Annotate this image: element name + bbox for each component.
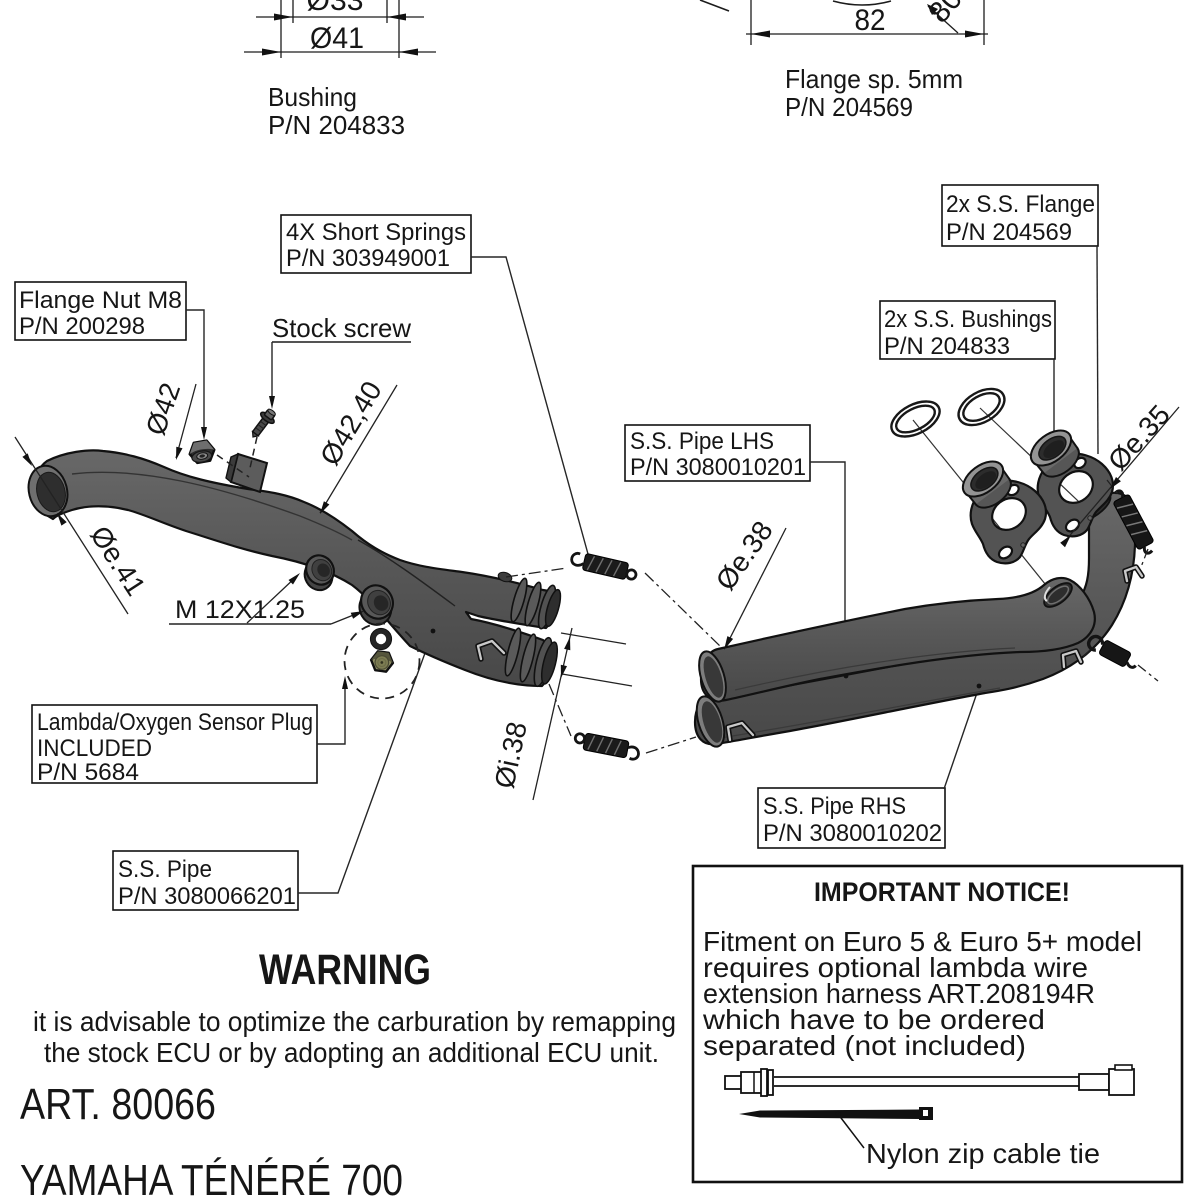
svg-text:IMPORTANT NOTICE!: IMPORTANT NOTICE! bbox=[814, 877, 1070, 907]
svg-text:P/N 5684: P/N 5684 bbox=[37, 759, 139, 786]
svg-text:4X Short Springs: 4X Short Springs bbox=[286, 219, 466, 246]
svg-text:the stock ECU or by adopting a: the stock ECU or by adopting an addition… bbox=[44, 1037, 659, 1068]
svg-text:Nylon zip cable tie: Nylon zip cable tie bbox=[866, 1138, 1100, 1169]
svg-text:P/N 3080010201: P/N 3080010201 bbox=[630, 454, 806, 481]
svg-text:Ø33: Ø33 bbox=[307, 0, 364, 17]
svg-text:Bushing: Bushing bbox=[268, 82, 357, 112]
svg-text:P/N 204569: P/N 204569 bbox=[946, 219, 1072, 246]
svg-text:Flange Nut M8: Flange Nut M8 bbox=[19, 287, 182, 314]
svg-text:2x S.S. Flange: 2x S.S. Flange bbox=[946, 191, 1095, 218]
svg-text:Ø41: Ø41 bbox=[310, 22, 364, 55]
svg-text:ART. 80066: ART. 80066 bbox=[20, 1080, 216, 1129]
svg-text:82: 82 bbox=[855, 4, 886, 37]
svg-text:P/N 303949001: P/N 303949001 bbox=[286, 245, 450, 272]
svg-text:Flange sp. 5mm: Flange sp. 5mm bbox=[785, 64, 963, 94]
svg-text:P/N 200298: P/N 200298 bbox=[19, 313, 145, 340]
svg-text:S.S. Pipe: S.S. Pipe bbox=[118, 856, 212, 883]
svg-text:it is advisable to optimize th: it is advisable to optimize the carburat… bbox=[33, 1006, 676, 1037]
svg-text:YAMAHA TÉNÉRÉ 700: YAMAHA TÉNÉRÉ 700 bbox=[20, 1156, 403, 1200]
svg-text:separated (not included): separated (not included) bbox=[703, 1030, 1026, 1061]
svg-text:WARNING: WARNING bbox=[259, 946, 431, 994]
svg-text:P/N 204569: P/N 204569 bbox=[785, 92, 913, 122]
svg-text:INCLUDED: INCLUDED bbox=[37, 735, 152, 762]
svg-text:P/N 3080066201: P/N 3080066201 bbox=[118, 883, 296, 910]
svg-text:M 12X1.25: M 12X1.25 bbox=[175, 596, 305, 624]
svg-text:P/N 3080010202: P/N 3080010202 bbox=[763, 820, 942, 847]
svg-text:2x S.S. Bushings: 2x S.S. Bushings bbox=[884, 306, 1052, 333]
svg-text:P/N 204833: P/N 204833 bbox=[268, 110, 405, 140]
svg-text:P/N 204833: P/N 204833 bbox=[884, 333, 1010, 360]
svg-text:Lambda/Oxygen Sensor Plug: Lambda/Oxygen Sensor Plug bbox=[37, 709, 313, 736]
svg-text:Stock screw: Stock screw bbox=[272, 313, 411, 343]
svg-text:S.S. Pipe RHS: S.S. Pipe RHS bbox=[763, 793, 906, 820]
svg-text:S.S. Pipe LHS: S.S. Pipe LHS bbox=[630, 428, 774, 455]
